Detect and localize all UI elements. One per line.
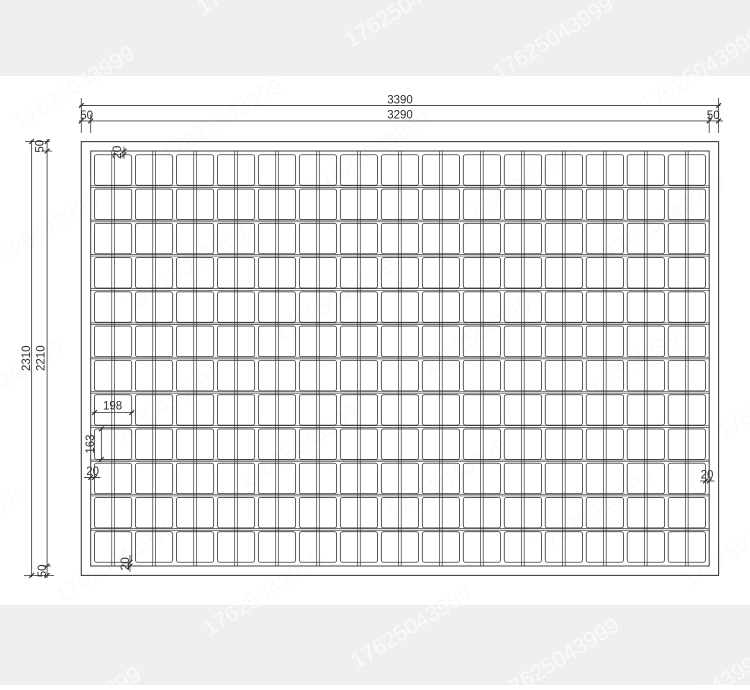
svg-text:198: 198 xyxy=(103,401,122,413)
svg-text:50: 50 xyxy=(80,110,93,122)
svg-text:2210: 2210 xyxy=(36,345,48,371)
svg-text:20: 20 xyxy=(110,145,124,159)
svg-text:2310: 2310 xyxy=(21,345,33,371)
svg-text:50: 50 xyxy=(37,564,49,577)
svg-text:163: 163 xyxy=(85,434,97,453)
svg-text:20: 20 xyxy=(701,470,714,482)
svg-text:20: 20 xyxy=(86,466,99,478)
svg-text:50: 50 xyxy=(35,140,47,153)
svg-text:3390: 3390 xyxy=(387,94,413,106)
svg-text:50: 50 xyxy=(707,110,720,122)
svg-text:3290: 3290 xyxy=(387,110,413,122)
svg-text:20: 20 xyxy=(118,557,132,571)
